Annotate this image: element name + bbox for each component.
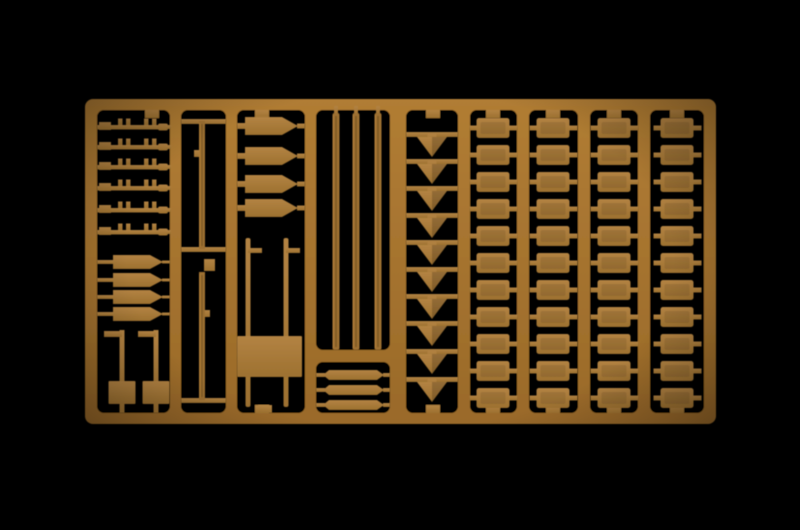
long-pole-part [353,106,360,350]
photo-stage [0,0,800,530]
long-pole-part [375,106,382,350]
long-pole-part [333,106,340,350]
sprue-photo [0,0,800,530]
